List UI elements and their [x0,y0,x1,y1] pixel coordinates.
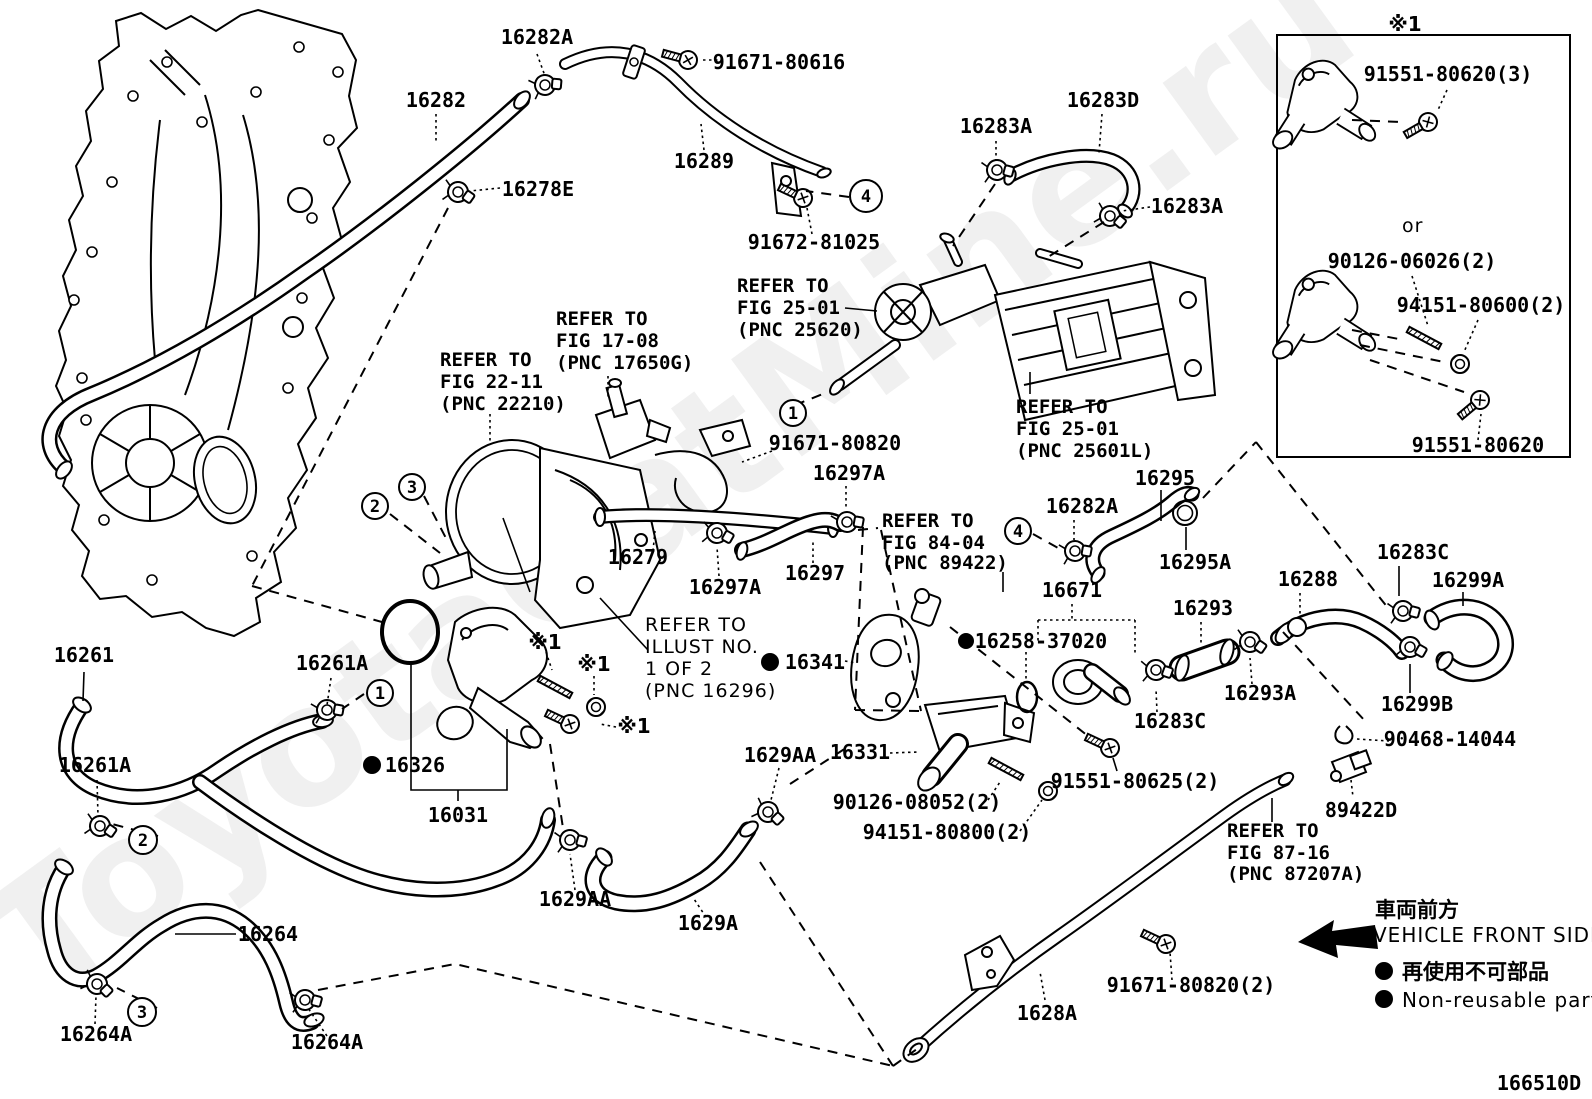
inset-bolt-91551-80620-3-drawing [1401,110,1440,143]
label-16264: 16264 [238,922,298,946]
label-16283c-1: 16283C [1377,540,1449,564]
label-16326: 16326 [385,753,445,777]
hose-16299a-drawing [1422,607,1505,673]
label-16264a-1: 16264A [60,1022,132,1046]
inset-nut-94151-80600-drawing [1451,355,1469,373]
label-16283a-2: 16283A [1151,194,1223,218]
legend-nonreusable-jp: 再使用不可部品 [1402,960,1549,984]
label-16282a-top: 16282A [501,25,573,49]
callout-1-hose: 1 [367,680,393,706]
label-16264a-2: 16264A [291,1030,363,1054]
figure-number: 166510D [1497,1071,1581,1095]
label-16282a-2: 16282A [1046,494,1118,518]
callout-3-throttle: 3 [399,474,425,500]
label-1629aa-1: 1629AA [744,743,816,767]
label-16293: 16293 [1173,596,1233,620]
callout-3-hose: 3 [128,998,156,1026]
inset-label-91551-80620-3: 91551-80620(3) [1364,62,1533,86]
gasket-16341-drawing [851,615,919,720]
ref-fig2501b-line3: (PNC 25601L) [1016,440,1153,462]
label-1629a: 1629A [678,911,738,935]
hose-1629a-drawing [593,818,761,903]
label-16279: 16279 [608,545,668,569]
callout-1-egr: 1 [780,400,806,426]
label-16671: 16671 [1042,578,1102,602]
sensor-89422-drawing [911,589,942,627]
label-16288: 16288 [1278,567,1338,591]
clamp-1629aa-left-drawing [554,827,588,852]
callout-4-top: 4 [850,180,882,212]
ref-illust-line1: REFER TO [645,614,747,636]
legend-dot-jp [1375,962,1393,980]
inset-label-91551-80620: 91551-80620 [1412,433,1544,457]
label-16283a-1: 16283A [960,114,1032,138]
label-16295: 16295 [1135,466,1195,490]
label-91671-80820: 91671-80820 [769,431,901,455]
label-16297a-2: 16297A [689,575,761,599]
ref-fig8404-line1: REFER TO [882,510,974,532]
ref-fig8716-line3: (PNC 87207A) [1227,863,1364,885]
ref-fig8716-line2: FIG 87-16 [1227,842,1330,864]
vehicle-front-arrow-icon [1298,920,1378,958]
label-91672-81025: 91672-81025 [748,230,880,254]
inset-stud-90126-06026-drawing [1407,327,1442,349]
svg-text:1: 1 [375,684,385,704]
parts-diagram-page: ToyotaCatMine.ru [0,0,1592,1099]
clamp-16295a-drawing [1173,501,1197,525]
non-reusable-dot-16258 [958,633,974,649]
non-reusable-dot-16326 [363,756,381,774]
svg-text:4: 4 [861,187,871,207]
legend: 車両前方 VEHICLE FRONT SIDE 再使用不可部品 Non-reus… [1298,898,1592,1095]
thermostat-16671-drawing [1017,660,1133,712]
inset-box: ※1 91551-80620(3) or 90126-06026(2) 9415… [1270,12,1570,457]
inset-star1-marker: ※1 [1388,12,1421,36]
clamp-16264a-right-drawing [289,987,323,1012]
ref-fig2211-line1: REFER TO [440,349,532,371]
ref-fig1708-line1: REFER TO [556,308,648,330]
label-16297: 16297 [785,561,845,585]
ref-fig2501a-line2: FIG 25-01 [737,297,840,319]
label-16299b: 16299B [1381,692,1453,716]
label-16278e: 16278E [502,177,574,201]
label-16258-37020: 16258-37020 [975,629,1107,653]
bolt-91671-80820-2-drawing [1139,925,1178,956]
inset-outlet-lower-drawing [1270,271,1379,362]
star1-mark-a: ※1 [528,630,561,654]
label-90468-14044: 90468-14044 [1384,727,1516,751]
label-94151-80800: 94151-80800(2) [863,820,1032,844]
label-1628a: 1628A [1017,1001,1077,1025]
diagram-canvas: ToyotaCatMine.ru [0,0,1592,1099]
label-16295a: 16295A [1159,550,1231,574]
pipe-1628a-drawing [899,770,1296,1066]
callout-2-hose: 2 [129,826,157,854]
ref-fig1708-line2: FIG 17-08 [556,330,659,352]
label-16283d: 16283D [1067,88,1139,112]
clamp-16282a-drawing [528,70,564,100]
label-16261: 16261 [54,643,114,667]
inset-label-90126-06026: 90126-06026(2) [1328,249,1497,273]
ref-fig2501b-line1: REFER TO [1016,396,1108,418]
label-16282: 16282 [406,88,466,112]
star1-mark-b: ※1 [577,652,610,676]
label-16299a: 16299A [1432,568,1504,592]
nut-16031-drawing [587,698,605,716]
svg-text:3: 3 [137,1003,147,1023]
bolt-91551-80625-drawing [1083,729,1122,760]
svg-text:4: 4 [1013,522,1023,542]
stud-90126-08052-drawing [989,758,1024,780]
label-91671-80820-2: 91671-80820(2) [1107,973,1276,997]
pipe-16293-drawing [1173,638,1236,682]
hook-90468-drawing [1335,726,1352,743]
legend-dot-en [1375,990,1393,1008]
label-16261a-1: 16261A [296,651,368,675]
ref-illust-line4: (PNC 16296) [645,680,776,702]
clamp-16283c-upper-drawing [1387,598,1421,623]
legend-front-jp: 車両前方 [1375,898,1459,922]
label-1629aa-2: 1629AA [539,887,611,911]
ref-fig2501b-line2: FIG 25-01 [1016,418,1119,440]
pipe-16288-drawing [1272,617,1402,652]
ref-fig1708-line3: (PNC 17650G) [556,352,693,374]
label-16331: 16331 [830,740,890,764]
callout-2-throttle: 2 [362,493,388,519]
legend-nonreusable-en: Non-reusable part [1402,988,1592,1012]
star1-mark-c: ※1 [617,714,650,738]
svg-text:1: 1 [788,404,798,424]
label-90126-08052: 90126-08052(2) [833,790,1002,814]
inset-label-or: or [1402,215,1423,237]
label-16341: 16341 [785,650,845,674]
bolt-16031-drawing [543,705,582,736]
inset-label-94151-80600: 94151-80600(2) [1397,293,1566,317]
clamp-16278e-drawing [442,180,476,205]
non-reusable-dot-16341 [761,653,779,671]
label-16297a-1: 16297A [813,461,885,485]
ref-fig2211-line2: FIG 22-11 [440,371,543,393]
ref-fig8404-line2: FIG 84-04 [882,532,985,554]
water-outlet-16331-drawing [914,696,1034,795]
label-16261a-2: 16261A [59,753,131,777]
timing-cover-drawing [56,10,357,636]
ref-illust-line3: 1 OF 2 [645,658,713,680]
ref-illust-line2: ILLUST NO. [645,636,759,658]
ref-fig8716-line1: REFER TO [1227,820,1319,842]
label-91551-80625: 91551-80625(2) [1051,769,1220,793]
svg-text:2: 2 [138,831,148,851]
clamp-16283c-lower-drawing [1141,659,1174,682]
ref-fig2211-line3: (PNC 22210) [440,393,566,415]
callout-4-clamp: 4 [1005,518,1031,544]
svg-text:3: 3 [407,478,417,498]
label-16031: 16031 [428,803,488,827]
label-16289: 16289 [674,149,734,173]
label-16283c-2: 16283C [1134,709,1206,733]
ref-fig2501a-line1: REFER TO [737,275,829,297]
legend-front-en: VEHICLE FRONT SIDE [1373,923,1592,947]
ref-fig8404-line3: (PNC 89422) [882,552,1008,574]
inset-bolt-91551-80620-drawing [1454,387,1492,423]
svg-text:2: 2 [370,497,380,517]
label-16293a: 16293A [1224,681,1296,705]
label-89422d: 89422D [1325,798,1397,822]
ref-fig2501a-line3: (PNC 25620) [737,319,863,341]
sensor-89422d-drawing [1331,750,1371,782]
label-91671-80616: 91671-80616 [713,50,845,74]
